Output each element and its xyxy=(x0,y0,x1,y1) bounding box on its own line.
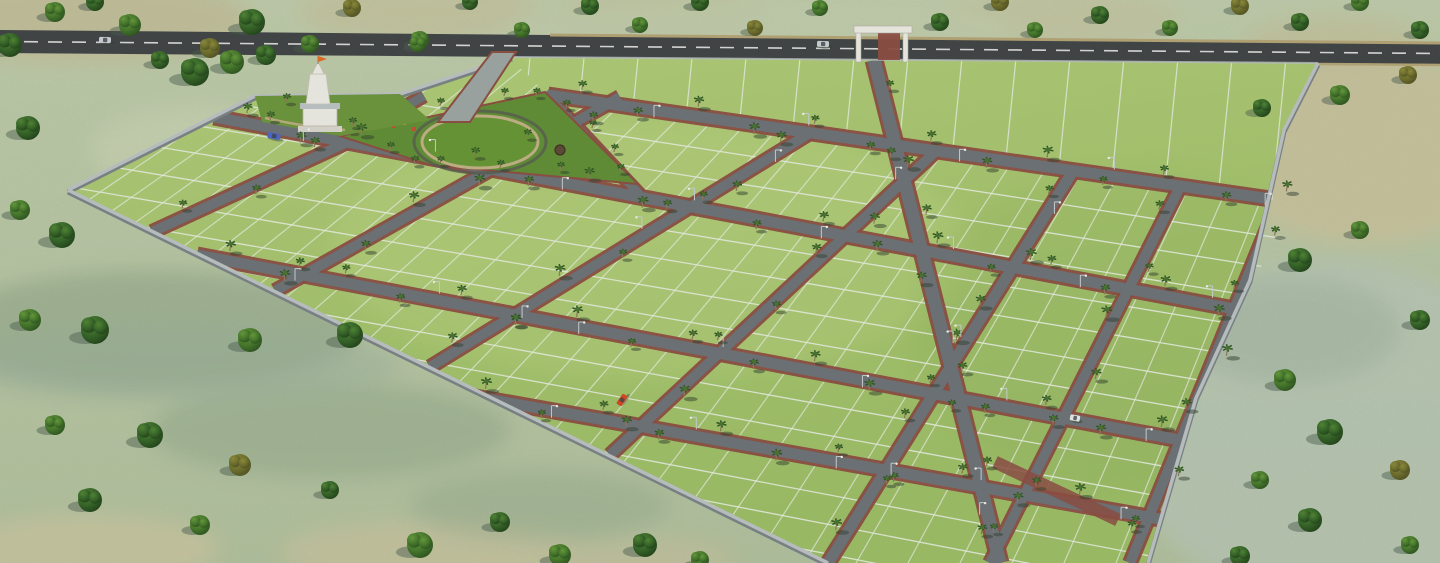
scene-stage xyxy=(0,0,1440,563)
scene-svg xyxy=(0,0,1440,563)
render-grain xyxy=(0,0,1440,563)
